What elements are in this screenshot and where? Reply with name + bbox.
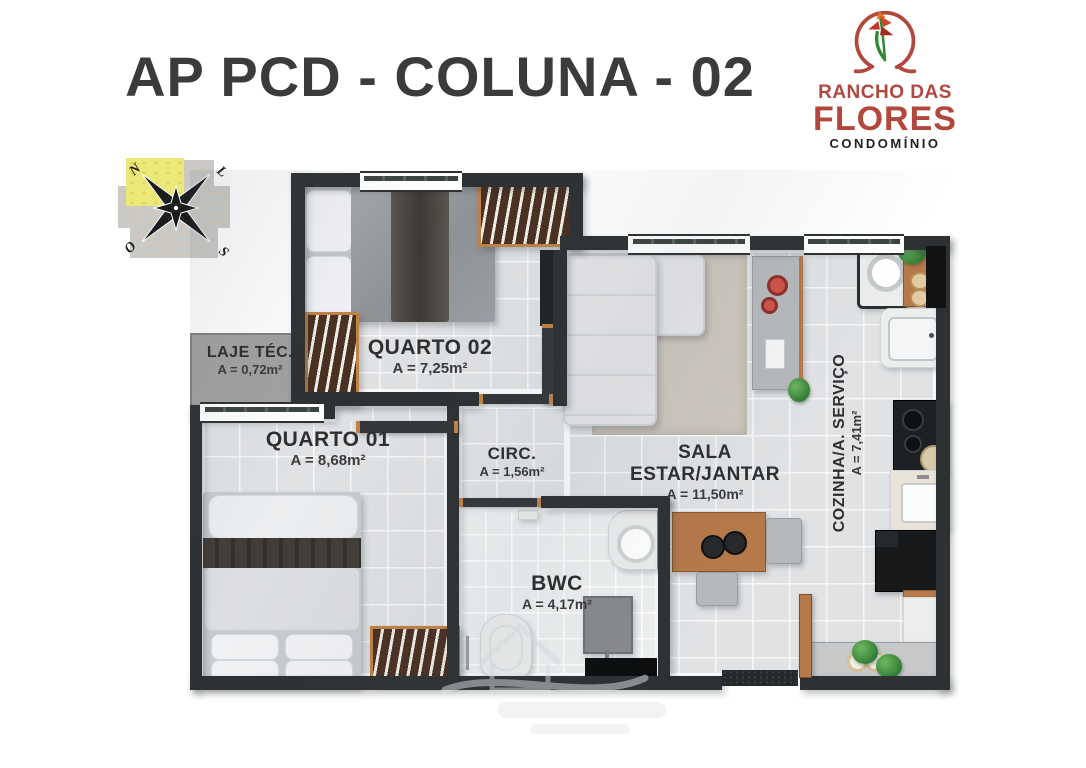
condo-logo: RANCHO DAS FLORES CONDOMÍNIO: [810, 6, 960, 153]
bed-quarto-02: [303, 186, 495, 322]
room-area: A = 8,68m²: [248, 452, 408, 469]
window-sala: [628, 234, 750, 255]
door-leaf-bwc: [459, 498, 541, 507]
flower-logo-icon: [827, 6, 943, 78]
label-bwc: BWC A = 4,17m²: [497, 572, 617, 612]
room-area: A = 4,17m²: [497, 596, 617, 612]
compass-rose-icon: N L O S: [118, 150, 234, 266]
dining-chair-right: [766, 518, 802, 564]
wall: [800, 676, 950, 690]
compass-label-east: L: [213, 163, 230, 181]
watermark-text-blur: [530, 724, 630, 734]
window-service-dark: [926, 246, 946, 308]
label-circulacao: CIRC. A = 1,56m²: [452, 444, 572, 479]
bwc-shelf: [518, 510, 538, 520]
dining-table: [672, 512, 766, 572]
entry-door-leaf: [799, 594, 812, 678]
sofa: [563, 254, 657, 426]
room-area: A = 1,56m²: [452, 464, 572, 479]
bwc-sink-counter: [608, 510, 661, 570]
laundry-sink: [880, 308, 944, 368]
wall: [190, 405, 202, 690]
compass-label-north: N: [126, 160, 145, 179]
room-name: CIRC.: [452, 444, 572, 464]
floorplan-page: AP PCD - COLUNA - 02 RANCHO DAS FLORES C…: [0, 0, 1086, 768]
room-name: BWC: [497, 572, 617, 596]
door-leaf-quarto-02-entry: [479, 394, 553, 404]
label-sala-estar-jantar: SALA ESTAR/JANTAR A = 11,50m²: [605, 442, 805, 502]
floor-quarto-01: [335, 406, 447, 422]
dining-chair-bottom: [696, 572, 738, 606]
sideboard-sala: [752, 256, 803, 390]
bed-quarto-01: [203, 492, 361, 688]
room-name: SALA ESTAR/JANTAR: [605, 442, 805, 486]
window-quarto-01: [200, 402, 324, 423]
compass-label-west: O: [122, 239, 140, 257]
page-title: AP PCD - COLUNA - 02: [90, 44, 790, 109]
window-cozinha: [804, 234, 904, 255]
entry-door-mat: [722, 670, 798, 686]
plant-bar-1: [852, 640, 878, 664]
room-area: A = 7,25m²: [350, 360, 510, 377]
room-area: A = 7,41m²: [849, 333, 864, 553]
room-area: A = 11,50m²: [605, 486, 805, 502]
wall: [553, 250, 567, 406]
label-quarto-01: QUARTO 01 A = 8,68m²: [248, 428, 408, 469]
label-cozinha-servico: COZINHA/A. SERVIÇO A = 7,41m²: [831, 333, 873, 553]
room-name: QUARTO 02: [350, 336, 510, 360]
wall: [658, 496, 670, 676]
logo-subtitle: CONDOMÍNIO: [810, 135, 960, 153]
plant-bar-2: [876, 654, 902, 678]
tv-panel-quarto-02: [540, 250, 554, 326]
plant-sala: [788, 378, 810, 402]
compass-label-south: S: [215, 244, 231, 260]
room-name: COZINHA/A. SERVIÇO: [831, 333, 849, 553]
room-name: LAJE TÉC.: [192, 344, 308, 362]
room-name: QUARTO 01: [248, 428, 408, 452]
window-quarto-02: [360, 171, 462, 192]
refrigerator: [875, 530, 937, 592]
door-leaf-quarto-02: [542, 324, 553, 404]
label-laje-tecnica: LAJE TÉC. A = 0,72m²: [192, 344, 308, 377]
label-quarto-02: QUARTO 02 A = 7,25m²: [350, 336, 510, 377]
room-area: A = 0,72m²: [192, 362, 308, 377]
logo-name-line2: FLORES: [810, 103, 960, 135]
